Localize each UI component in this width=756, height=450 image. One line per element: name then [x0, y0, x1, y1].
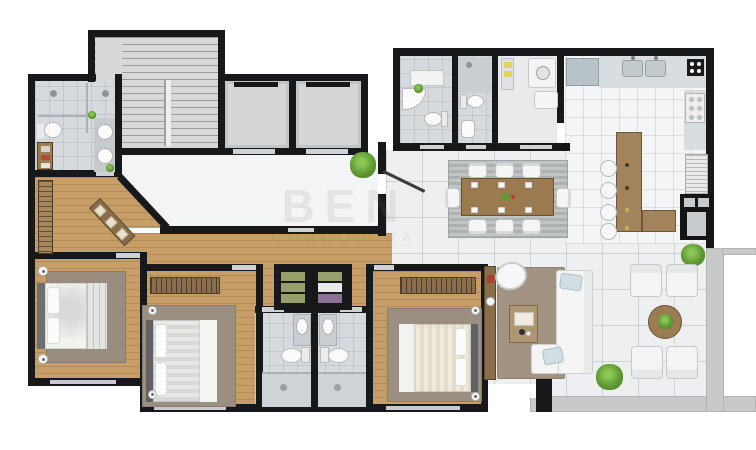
- wall: [88, 30, 225, 37]
- cabinet-item: [41, 155, 50, 160]
- elevator-door-bar: [306, 82, 350, 87]
- towel-shelf-icon: [318, 283, 342, 292]
- wall: [492, 55, 498, 149]
- shower-head-icon: [50, 90, 57, 97]
- burner-icon: [689, 115, 694, 120]
- toilet-icon: [467, 95, 484, 108]
- toilet-icon: [37, 124, 44, 138]
- dining-chair-icon: [556, 188, 571, 208]
- door-opening: [374, 265, 394, 270]
- toilet-icon: [301, 347, 310, 363]
- decor-item: [105, 216, 118, 229]
- shower-head-icon: [334, 384, 341, 391]
- wall: [366, 264, 373, 410]
- wall: [393, 48, 400, 151]
- centerpiece-icon: [502, 193, 510, 201]
- dining-chair-icon: [495, 163, 514, 178]
- towel-shelf-icon: [318, 272, 342, 281]
- elevator-door-bar: [234, 82, 278, 87]
- decor-item: [625, 208, 629, 212]
- toilet-icon: [281, 348, 302, 363]
- shower-area: [318, 374, 366, 407]
- shower-head-icon: [466, 62, 472, 68]
- pillow-icon: [155, 362, 167, 396]
- plant-icon: [350, 152, 376, 178]
- plant-icon: [658, 314, 673, 329]
- decor-item: [526, 331, 531, 336]
- sink-icon: [97, 148, 113, 164]
- plant-icon: [681, 244, 705, 266]
- elevator-1-floor: [225, 81, 289, 148]
- door-opening: [420, 145, 444, 149]
- wall-stub: [536, 378, 552, 412]
- dining-chair-icon: [522, 163, 541, 178]
- door-opening: [116, 253, 140, 258]
- sink-icon: [461, 120, 475, 138]
- wall: [378, 142, 386, 174]
- bed-headboard: [37, 283, 45, 349]
- cabinet-item: [41, 146, 50, 152]
- window: [386, 406, 460, 410]
- laundry-shelf: [501, 58, 514, 90]
- wall: [311, 306, 318, 410]
- shower-head-icon: [280, 384, 287, 391]
- shower-area: [262, 374, 311, 407]
- wall-lamp-icon: [471, 392, 480, 401]
- burner-icon: [690, 69, 694, 73]
- fridge-icon: [685, 154, 708, 194]
- washing-machine-icon: [528, 58, 556, 88]
- faucet-icon: [631, 56, 635, 60]
- plant-icon: [106, 164, 114, 172]
- stool-icon: [600, 182, 617, 199]
- terrace-armchair-icon: [631, 346, 663, 379]
- toilet-icon: [328, 348, 349, 363]
- floor-plan: BEN CORRETORA: [0, 0, 756, 450]
- blanket-icon: [399, 324, 415, 392]
- plate-icon: [471, 207, 478, 213]
- door-opening: [232, 265, 256, 270]
- burner-icon: [697, 69, 701, 73]
- dining-chair-icon: [445, 188, 460, 208]
- kitchen-cabinet: [566, 58, 599, 86]
- tv-sideboard: [484, 266, 496, 380]
- elevator-door: [233, 149, 275, 154]
- sink-icon: [97, 124, 113, 140]
- ladder-shelf: [38, 180, 53, 254]
- wall-lamp-icon: [471, 306, 480, 315]
- dining-chair-icon: [468, 163, 487, 178]
- island-bar: [642, 210, 676, 232]
- terrace-parapet-right: [706, 248, 724, 412]
- towel-niche: [274, 264, 352, 310]
- oven-control-icon: [684, 198, 695, 207]
- burner-icon: [697, 62, 701, 66]
- terrace-parapet-top: [722, 248, 756, 255]
- toilet-icon: [424, 112, 442, 126]
- towel-shelf-icon: [281, 283, 305, 292]
- door-opening: [520, 145, 552, 149]
- pillow-icon: [542, 346, 564, 365]
- sink-icon: [322, 318, 334, 335]
- toilet-icon: [441, 111, 448, 127]
- door-opening: [466, 145, 486, 149]
- towel-shelf-icon: [281, 294, 305, 303]
- blanket-icon: [199, 320, 217, 402]
- blanket-icon: [86, 283, 107, 349]
- kitchen-sink-icon: [622, 60, 643, 77]
- window: [50, 380, 116, 384]
- toilet-icon: [44, 122, 62, 138]
- kitchen-sink-icon: [645, 60, 666, 77]
- centerpiece-icon: [511, 195, 515, 199]
- cabinet-item: [41, 163, 50, 168]
- shower-area: [459, 57, 491, 93]
- stove-icon: [685, 93, 705, 123]
- decor-item: [116, 228, 129, 241]
- pillow-icon: [155, 324, 167, 358]
- dining-table: [461, 178, 554, 216]
- wall-lamp-icon: [38, 266, 48, 276]
- sink-icon: [296, 318, 308, 335]
- wall: [393, 48, 713, 56]
- plate-icon: [525, 182, 532, 188]
- burner-icon: [697, 106, 702, 111]
- pillow-icon: [47, 287, 60, 314]
- wall-lamp-icon: [148, 306, 157, 315]
- stool-icon: [600, 204, 617, 221]
- wall: [557, 55, 564, 123]
- oven-door-icon: [687, 212, 706, 236]
- decor-item: [519, 329, 525, 335]
- decor-item: [625, 186, 629, 190]
- shower-head-icon: [102, 90, 109, 97]
- washer-door-icon: [536, 66, 550, 80]
- decor-item: [486, 297, 495, 306]
- decor-item: [94, 204, 107, 217]
- plate-icon: [471, 182, 478, 188]
- oven-control-icon: [698, 198, 709, 207]
- pillow-icon: [455, 358, 467, 386]
- dining-chair-icon: [522, 219, 541, 234]
- decor-item: [487, 275, 494, 283]
- cooktop-icon: [687, 59, 704, 76]
- wall-lamp-icon: [148, 390, 157, 399]
- pillow-icon: [559, 273, 583, 292]
- elevator-2-floor: [296, 81, 361, 148]
- plate-icon: [525, 207, 532, 213]
- bath-cabinet: [37, 142, 53, 170]
- wall: [452, 55, 458, 149]
- wall: [28, 74, 96, 81]
- wall: [289, 74, 296, 155]
- decor-item: [625, 163, 629, 167]
- oven-tower: [680, 194, 713, 240]
- towel-shelf-icon: [281, 272, 305, 281]
- island-bar: [616, 132, 642, 232]
- stair-rail: [164, 80, 171, 146]
- pillow-icon: [455, 328, 467, 356]
- burner-icon: [689, 106, 694, 111]
- elevator-door: [306, 149, 348, 154]
- burner-icon: [697, 115, 702, 120]
- wall: [115, 148, 225, 155]
- bed-headboard: [471, 324, 478, 392]
- clothes-rack-icon: [150, 277, 220, 294]
- plant-icon: [414, 84, 423, 93]
- tray-icon: [514, 312, 534, 326]
- wall: [160, 226, 386, 234]
- laundry-cabinet: [534, 91, 558, 109]
- stool-icon: [600, 160, 617, 177]
- plate-icon: [498, 182, 505, 188]
- burner-icon: [690, 62, 694, 66]
- shower-glass: [86, 83, 88, 133]
- laundry-item: [504, 71, 512, 77]
- clothes-rack-icon: [400, 277, 476, 294]
- coffee-table: [509, 305, 538, 343]
- wall: [218, 30, 225, 155]
- toilet-icon: [460, 94, 467, 109]
- burner-icon: [697, 97, 702, 102]
- dining-chair-icon: [468, 219, 487, 234]
- dining-chair-icon: [495, 219, 514, 234]
- plate-icon: [498, 207, 505, 213]
- burner-icon: [689, 97, 694, 102]
- terrace-armchair-icon: [666, 264, 698, 297]
- stool-icon: [600, 223, 617, 240]
- wall: [361, 74, 368, 155]
- terrace-armchair-icon: [666, 346, 698, 379]
- towel-shelf-icon: [318, 294, 342, 303]
- shower-glass: [38, 115, 86, 117]
- door-opening: [288, 228, 314, 232]
- plant-icon: [596, 364, 623, 390]
- terrace-armchair-icon: [630, 264, 662, 297]
- plant-icon: [88, 111, 96, 119]
- pillow-icon: [47, 317, 60, 344]
- laundry-item: [504, 62, 512, 68]
- floor-cutout: [488, 384, 536, 398]
- decor-item: [625, 226, 629, 230]
- wall-lamp-icon: [38, 354, 48, 364]
- faucet-icon: [654, 56, 658, 60]
- wall: [28, 74, 35, 386]
- wall: [115, 74, 122, 177]
